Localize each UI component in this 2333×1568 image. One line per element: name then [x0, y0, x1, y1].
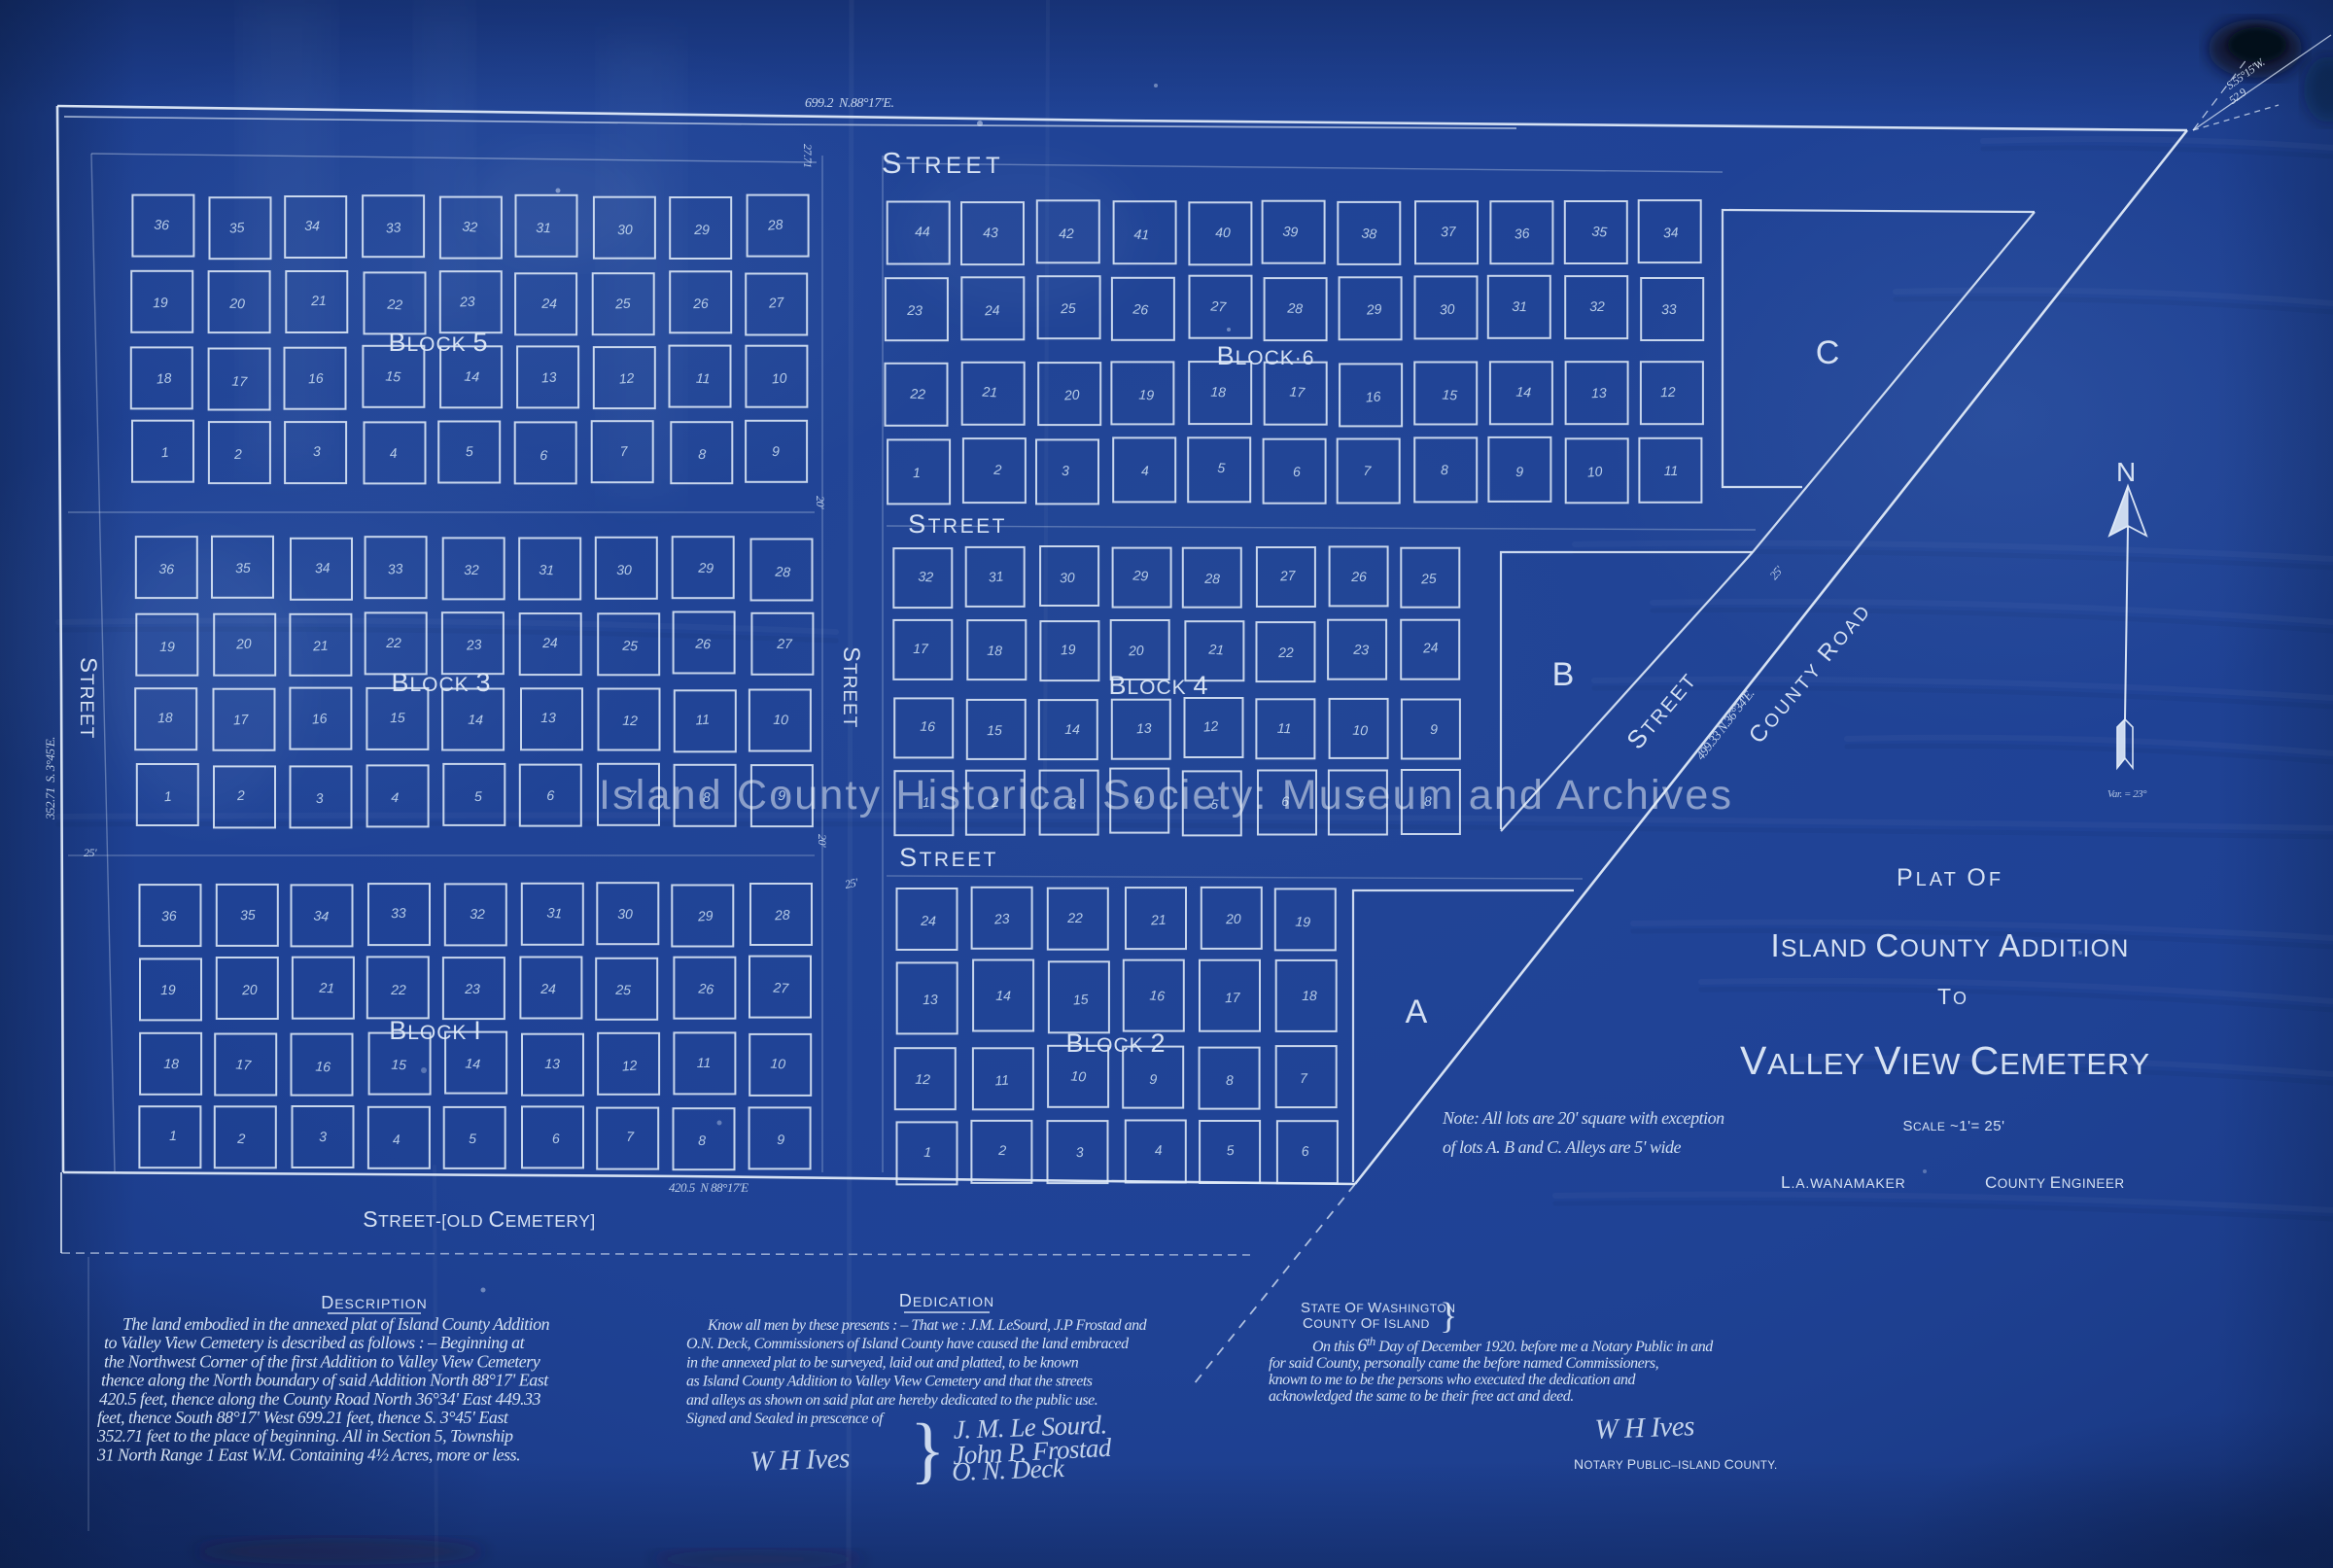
- svg-text:26: 26: [1132, 300, 1149, 317]
- svg-text:34: 34: [315, 560, 331, 576]
- svg-text:9: 9: [1149, 1071, 1158, 1087]
- svg-text:28: 28: [1203, 571, 1220, 587]
- svg-text:36: 36: [161, 908, 177, 924]
- svg-text:The land embodied in the annex: The land embodied in the annexed plat of…: [122, 1314, 550, 1334]
- svg-text:25': 25': [84, 846, 97, 859]
- svg-text:8: 8: [698, 446, 707, 462]
- svg-text:31: 31: [546, 904, 563, 921]
- svg-text:12: 12: [618, 369, 635, 386]
- svg-text:30: 30: [617, 906, 633, 922]
- svg-text:W H Ives: W H Ives: [749, 1443, 851, 1478]
- svg-text:}: }: [1440, 1296, 1457, 1337]
- svg-text:19: 19: [153, 295, 168, 310]
- svg-text:23: 23: [464, 981, 480, 996]
- svg-text:2: 2: [997, 1142, 1007, 1158]
- svg-text:17: 17: [231, 373, 249, 390]
- svg-text:14: 14: [465, 1055, 481, 1071]
- svg-text:4: 4: [389, 445, 398, 461]
- svg-text:13: 13: [923, 992, 938, 1007]
- svg-text:15: 15: [987, 722, 1002, 738]
- svg-text:42: 42: [1059, 226, 1074, 241]
- svg-text:12: 12: [622, 713, 638, 728]
- svg-text:26: 26: [694, 635, 712, 651]
- svg-text:5: 5: [1217, 460, 1226, 476]
- svg-text:23: 23: [1352, 642, 1370, 658]
- svg-text:35: 35: [228, 219, 245, 235]
- svg-text:35: 35: [1591, 223, 1608, 239]
- svg-text:36: 36: [1514, 225, 1530, 241]
- svg-text:}: }: [910, 1410, 945, 1491]
- svg-text:25: 25: [621, 638, 639, 654]
- svg-text:7: 7: [1300, 1070, 1308, 1086]
- svg-text:3: 3: [313, 443, 322, 459]
- svg-text:420.5 N 88°17'E: 420.5 N 88°17'E: [669, 1180, 749, 1195]
- svg-text:35: 35: [235, 560, 251, 575]
- svg-text:17: 17: [913, 641, 929, 656]
- svg-text:32: 32: [470, 906, 485, 922]
- svg-text:20: 20: [228, 296, 245, 311]
- svg-text:DEDICATION: DEDICATION: [899, 1291, 994, 1310]
- svg-text:15: 15: [390, 710, 405, 725]
- svg-text:27: 27: [1209, 297, 1228, 314]
- svg-text:20: 20: [235, 636, 252, 652]
- svg-text:22: 22: [386, 296, 403, 313]
- svg-text:25: 25: [1420, 571, 1437, 587]
- svg-text:2: 2: [992, 462, 1002, 478]
- svg-text:19: 19: [1295, 914, 1311, 930]
- svg-text:2: 2: [236, 1131, 246, 1147]
- svg-text:24: 24: [920, 913, 936, 928]
- svg-text:DESCRIPTION: DESCRIPTION: [321, 1293, 428, 1312]
- svg-text:31: 31: [536, 220, 551, 235]
- svg-text:4: 4: [391, 789, 400, 805]
- svg-text:23: 23: [906, 302, 923, 318]
- svg-text:36: 36: [154, 217, 169, 233]
- svg-text:STREET: STREET: [838, 646, 864, 728]
- svg-text:known to me to be the persons: known to me to be the persons who execut…: [1269, 1372, 1636, 1388]
- svg-text:22: 22: [1066, 910, 1083, 925]
- svg-text:10: 10: [770, 1056, 786, 1072]
- svg-text:15: 15: [385, 367, 401, 384]
- svg-text:B: B: [1552, 656, 1575, 693]
- svg-text:31: 31: [988, 568, 1004, 584]
- svg-text:31 North Range 1 East W.M. Con: 31 North Range 1 East W.M. Containing 4½…: [96, 1445, 520, 1464]
- svg-text:34: 34: [313, 907, 330, 923]
- svg-text:10: 10: [1586, 463, 1603, 479]
- svg-text:20: 20: [1062, 387, 1080, 403]
- svg-text:19: 19: [1138, 387, 1155, 403]
- svg-text:35: 35: [240, 907, 256, 923]
- svg-text:26: 26: [1350, 569, 1367, 584]
- svg-text:22: 22: [1277, 645, 1294, 660]
- svg-text:29: 29: [697, 560, 714, 576]
- svg-text:16: 16: [1365, 388, 1381, 404]
- svg-text:14: 14: [1064, 721, 1080, 737]
- svg-text:4: 4: [392, 1132, 400, 1147]
- svg-text:24: 24: [540, 981, 556, 996]
- svg-text:17: 17: [235, 1056, 253, 1072]
- svg-text:8: 8: [1441, 462, 1448, 477]
- svg-text:17: 17: [232, 711, 250, 727]
- svg-text:38: 38: [1361, 225, 1377, 241]
- svg-text:Know all men by these presents: Know all men by these presents : – That …: [707, 1317, 1148, 1334]
- svg-text:11: 11: [994, 1072, 1009, 1089]
- svg-text:15: 15: [1072, 991, 1089, 1007]
- svg-text:16: 16: [308, 370, 324, 387]
- svg-text:of lots A. B and C. Alleys ar: of lots A. B and C. Alleys are 5' wide: [1443, 1137, 1682, 1157]
- svg-text:15: 15: [391, 1057, 406, 1073]
- svg-text:COUNTY OF ISLAND: COUNTY OF ISLAND: [1303, 1315, 1430, 1332]
- svg-text:13: 13: [540, 369, 557, 386]
- svg-text:24: 24: [540, 296, 557, 311]
- svg-text:PLAT OF: PLAT OF: [1897, 864, 2003, 891]
- svg-text:33: 33: [385, 219, 401, 235]
- svg-text:8: 8: [1226, 1072, 1234, 1088]
- svg-text:STREET: STREET: [75, 657, 101, 739]
- svg-text:19: 19: [160, 982, 176, 997]
- svg-text:33: 33: [391, 905, 406, 921]
- svg-text:30: 30: [1060, 570, 1075, 585]
- svg-text:N: N: [2116, 457, 2136, 487]
- svg-text:32: 32: [462, 218, 478, 234]
- svg-text:19: 19: [1061, 642, 1077, 658]
- svg-text:2: 2: [233, 446, 242, 462]
- svg-text:6: 6: [546, 787, 555, 803]
- svg-text:3: 3: [319, 1129, 327, 1144]
- svg-text:29: 29: [1132, 567, 1149, 583]
- svg-text:6: 6: [552, 1131, 561, 1146]
- svg-text:18: 18: [1210, 384, 1227, 401]
- svg-text:25: 25: [1060, 300, 1076, 317]
- svg-text:14: 14: [995, 988, 1011, 1003]
- svg-text:O. N. Deck: O. N. Deck: [952, 1453, 1065, 1486]
- svg-text:10: 10: [1352, 722, 1369, 739]
- svg-text:O.N. Deck, Commissioners of Is: O.N. Deck, Commissioners of Island Count…: [686, 1336, 1130, 1352]
- svg-text:1: 1: [923, 1144, 932, 1160]
- svg-text:33: 33: [387, 560, 403, 576]
- svg-text:33: 33: [1661, 301, 1677, 318]
- svg-text:Note: All lots are 20' square: Note: All lots are 20' square with excep…: [1442, 1108, 1724, 1128]
- svg-text:20: 20: [1128, 643, 1144, 659]
- svg-text:and alleys as shown on said pl: and alleys as shown on said plat are her…: [686, 1392, 1097, 1409]
- svg-text:10: 10: [1070, 1067, 1087, 1084]
- svg-text:420.5 feet, thence along the C: 420.5 feet, thence along the County Road…: [99, 1389, 540, 1409]
- svg-text:24: 24: [541, 635, 558, 650]
- svg-text:24: 24: [1421, 640, 1439, 656]
- svg-text:34: 34: [304, 218, 320, 233]
- svg-text:12: 12: [915, 1071, 930, 1087]
- svg-text:17: 17: [1289, 383, 1306, 400]
- svg-text:34: 34: [1663, 225, 1679, 241]
- svg-text:28: 28: [774, 563, 791, 579]
- svg-text:30: 30: [616, 562, 632, 577]
- svg-text:14: 14: [1515, 384, 1532, 401]
- svg-text:20: 20: [241, 982, 258, 998]
- svg-text:24: 24: [984, 302, 1001, 319]
- svg-text:27: 27: [772, 979, 790, 995]
- svg-text:3: 3: [1062, 463, 1069, 478]
- svg-text:L.A.WANAMAKER: L.A.WANAMAKER: [1781, 1172, 1906, 1192]
- svg-text:3: 3: [315, 790, 324, 807]
- svg-text:21: 21: [981, 383, 998, 400]
- svg-text:30: 30: [617, 222, 633, 237]
- svg-text:W H Ives: W H Ives: [1594, 1411, 1695, 1446]
- svg-text:21: 21: [312, 638, 329, 654]
- svg-text:12: 12: [621, 1057, 638, 1073]
- svg-text:31: 31: [1512, 298, 1527, 314]
- svg-text:20': 20': [814, 496, 827, 509]
- svg-text:23: 23: [465, 636, 482, 652]
- svg-text:5: 5: [469, 1131, 476, 1146]
- svg-text:32: 32: [1589, 298, 1605, 314]
- svg-text:13: 13: [540, 710, 556, 725]
- svg-text:40: 40: [1215, 225, 1231, 240]
- svg-text:20': 20': [816, 834, 829, 848]
- svg-text:16: 16: [315, 1059, 331, 1075]
- svg-text:28: 28: [766, 216, 783, 232]
- svg-text:11: 11: [1664, 463, 1679, 478]
- svg-text:22: 22: [390, 982, 406, 997]
- svg-text:6: 6: [1301, 1143, 1309, 1160]
- svg-text:thence along the North boundar: thence along the North boundary of said …: [101, 1371, 549, 1390]
- svg-text:39: 39: [1282, 223, 1299, 239]
- svg-text:13: 13: [1136, 720, 1153, 737]
- svg-text:22: 22: [909, 386, 925, 402]
- svg-text:43: 43: [983, 225, 998, 240]
- svg-text:15: 15: [1442, 387, 1458, 403]
- svg-text:feet, thence South 88°17' West: feet, thence South 88°17' West 699.21 fe…: [97, 1408, 509, 1427]
- svg-text:699.2 N.88°17'E.: 699.2 N.88°17'E.: [805, 96, 893, 111]
- svg-text:14: 14: [464, 367, 480, 384]
- svg-text:27: 27: [1279, 568, 1298, 584]
- svg-text:acknowledged the same to be th: acknowledged the same to be their free a…: [1269, 1388, 1574, 1405]
- svg-text:30: 30: [1439, 301, 1455, 318]
- svg-text:18: 18: [156, 369, 172, 386]
- svg-text:as Island County Addition to V: as Island County Addition to Valley View…: [686, 1374, 1093, 1390]
- svg-text:17: 17: [1225, 990, 1241, 1006]
- svg-text:9: 9: [1515, 464, 1523, 479]
- svg-text:COUNTY ENGINEER: COUNTY ENGINEER: [1985, 1173, 2125, 1192]
- svg-text:21: 21: [318, 980, 334, 996]
- svg-text:21: 21: [1150, 912, 1166, 928]
- svg-text:Signed and Sealed in prescence: Signed and Sealed in prescence of: [686, 1411, 886, 1427]
- svg-text:Island County Historical Socie: Island County Historical Society: Museum…: [599, 772, 1731, 819]
- svg-text:STATE OF WASHINGTON: STATE OF WASHINGTON: [1301, 1300, 1455, 1316]
- svg-text:11: 11: [695, 712, 710, 728]
- svg-text:26: 26: [692, 296, 709, 311]
- svg-text:12: 12: [1660, 384, 1676, 400]
- svg-text:in the annexed plat to be surv: in the annexed plat to be surveyed, laid…: [686, 1354, 1079, 1371]
- svg-text:3: 3: [1075, 1144, 1084, 1160]
- svg-text:to Valley View Cemetery is des: to Valley View Cemetery is described as …: [104, 1333, 526, 1352]
- svg-text:2: 2: [236, 787, 246, 803]
- svg-text:28: 28: [774, 907, 790, 923]
- svg-text:29: 29: [693, 222, 710, 237]
- svg-text:37: 37: [1441, 224, 1457, 240]
- svg-text:23: 23: [459, 294, 475, 310]
- svg-text:11: 11: [1277, 720, 1292, 737]
- svg-text:A: A: [1406, 993, 1428, 1030]
- svg-text:44: 44: [915, 224, 930, 239]
- svg-text:28: 28: [1286, 300, 1304, 317]
- svg-text:20: 20: [1225, 911, 1241, 926]
- svg-text:11: 11: [696, 370, 711, 387]
- svg-text:11: 11: [697, 1055, 712, 1070]
- svg-text:29: 29: [696, 907, 714, 923]
- svg-text:23: 23: [992, 910, 1010, 926]
- svg-text:9: 9: [772, 443, 780, 459]
- svg-text:SCALE ~1'= 25': SCALE ~1'= 25': [1903, 1118, 2005, 1134]
- svg-text:13: 13: [1591, 385, 1607, 401]
- svg-text:6: 6: [540, 447, 548, 463]
- svg-text:13: 13: [544, 1056, 560, 1071]
- svg-text:18: 18: [1302, 988, 1317, 1003]
- svg-text:32: 32: [918, 569, 934, 585]
- svg-text:27.71: 27.71: [801, 144, 815, 168]
- svg-text:6: 6: [1293, 464, 1301, 479]
- svg-text:4: 4: [1141, 463, 1149, 478]
- svg-text:12: 12: [1202, 717, 1219, 734]
- svg-text:32: 32: [464, 562, 479, 577]
- svg-text:19: 19: [159, 639, 175, 654]
- svg-text:1: 1: [160, 444, 169, 460]
- svg-text:25: 25: [614, 982, 631, 998]
- svg-text:352.71 S. 3°45'E.: 352.71 S. 3°45'E.: [43, 737, 57, 820]
- svg-text:9: 9: [1430, 721, 1438, 737]
- svg-text:for said County, personally ca: for said County, personally came the bef…: [1269, 1355, 1658, 1372]
- svg-text:8: 8: [698, 1132, 706, 1148]
- svg-text:16: 16: [920, 718, 935, 735]
- svg-text:36: 36: [158, 561, 175, 577]
- svg-text:25: 25: [614, 296, 631, 312]
- svg-text:5: 5: [1226, 1142, 1235, 1159]
- svg-text:27: 27: [767, 294, 785, 310]
- svg-text:31: 31: [539, 562, 554, 578]
- svg-text:C: C: [1816, 334, 1840, 371]
- svg-text:1: 1: [913, 465, 921, 480]
- svg-text:18: 18: [163, 1056, 179, 1072]
- svg-text:22: 22: [385, 635, 401, 650]
- svg-text:352.71 feet to the place of be: 352.71 feet to the place of beginning. A…: [96, 1426, 513, 1446]
- svg-text:5: 5: [465, 443, 473, 459]
- svg-text:29: 29: [1365, 300, 1382, 317]
- svg-text:the Northwest Corner of the fi: the Northwest Corner of the first Additi…: [104, 1351, 540, 1371]
- svg-text:16: 16: [311, 710, 328, 726]
- svg-text:1: 1: [163, 788, 172, 804]
- svg-text:Var. = 23°: Var. = 23°: [2107, 788, 2147, 800]
- svg-text:21: 21: [310, 293, 327, 308]
- svg-text:16: 16: [1149, 987, 1166, 1003]
- svg-text:18: 18: [987, 643, 1002, 659]
- svg-text:4: 4: [1154, 1142, 1163, 1158]
- svg-text:5: 5: [474, 788, 482, 804]
- svg-text:10: 10: [771, 369, 787, 386]
- svg-text:14: 14: [468, 712, 483, 728]
- svg-text:27: 27: [776, 636, 793, 651]
- svg-text:9: 9: [777, 1132, 785, 1147]
- svg-text:21: 21: [1207, 641, 1225, 657]
- svg-text:41: 41: [1133, 226, 1149, 243]
- svg-text:1: 1: [169, 1128, 177, 1143]
- svg-text:18: 18: [157, 710, 173, 725]
- svg-text:10: 10: [773, 712, 788, 728]
- svg-text:26: 26: [697, 980, 714, 996]
